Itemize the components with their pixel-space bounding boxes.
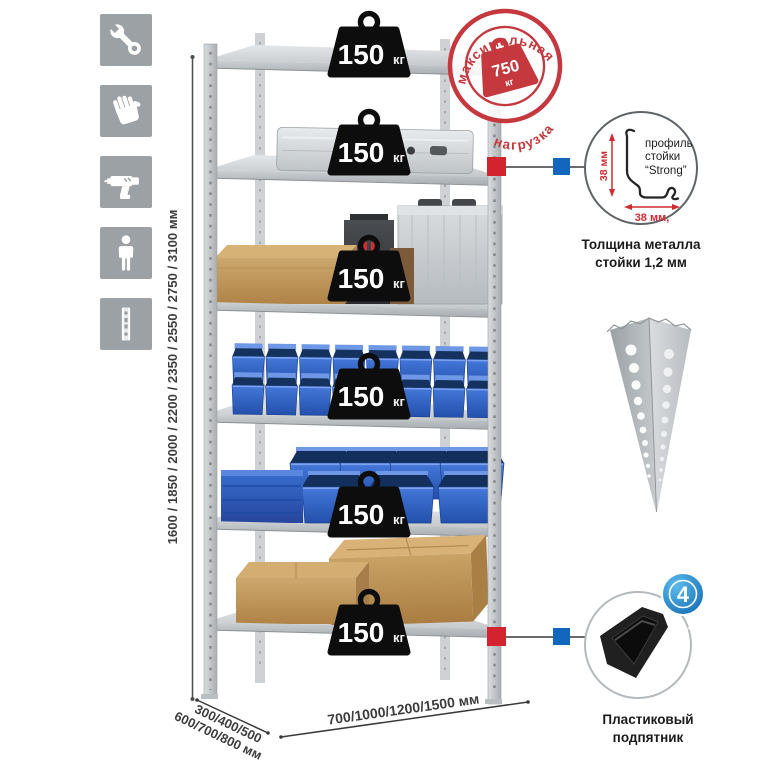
euro-crate [221, 470, 303, 523]
width-dimension-label: 700/1000/1200/1500 мм [326, 690, 480, 727]
svg-text:150: 150 [338, 381, 385, 412]
foot-caption-line2: подпятник [613, 730, 684, 745]
svg-text:150: 150 [338, 617, 385, 648]
svg-text:150: 150 [338, 137, 385, 168]
foot-callout: 4 в комплекте Пластиковый подпятник [585, 573, 704, 745]
svg-text:кг: кг [393, 52, 406, 67]
svg-text:150: 150 [338, 39, 385, 70]
red-marker [487, 157, 506, 176]
blue-marker [553, 158, 570, 175]
depth-dimension: 300/400/500 600/700/800 мм [172, 695, 271, 763]
profile-caption-line2: стойки 1,2 мм [595, 255, 687, 270]
load-badge: 150 кг [331, 112, 407, 173]
quantity-badge-value: 4 [677, 582, 690, 607]
height-dimension: 1600 / 1850 / 2000 / 2200 / 2350 / 2550 … [165, 55, 195, 701]
profile-caption-line1: Толщина металла [581, 237, 701, 252]
bottom-connector [487, 627, 587, 646]
svg-text:кг: кг [393, 394, 406, 409]
top-connector [487, 157, 585, 176]
shelving-infographic: 1600 / 1850 / 2000 / 2200 / 2350 / 2550 … [0, 0, 765, 765]
svg-text:кг: кг [393, 276, 406, 291]
svg-text:кг: кг [393, 150, 406, 165]
height-dimension-label: 1600 / 1850 / 2000 / 2200 / 2350 / 2550 … [165, 210, 180, 545]
profile-callout: 38 мм 38 мм, профиль стойки “Strong” Тол… [581, 112, 701, 270]
svg-text:150: 150 [338, 499, 385, 530]
svg-text:кг: кг [393, 630, 406, 645]
svg-text:кг: кг [393, 512, 406, 527]
svg-text:150: 150 [338, 263, 385, 294]
dim-vertical-label: 38 мм [598, 151, 610, 181]
foot-caption-line1: Пластиковый [602, 712, 693, 727]
dim-horizontal-label: 38 мм, [635, 212, 670, 224]
load-badge: 150 кг [331, 14, 407, 75]
svg-text:стойки: стойки [645, 151, 680, 163]
blue-marker [553, 628, 570, 645]
red-marker [487, 627, 506, 646]
metal-angle-post [607, 318, 691, 512]
scene: 1600 / 1850 / 2000 / 2200 / 2350 / 2550 … [0, 0, 765, 765]
svg-text:“Strong”: “Strong” [645, 165, 687, 177]
svg-text:профиль: профиль [645, 138, 693, 150]
front-left-post [201, 44, 218, 699]
